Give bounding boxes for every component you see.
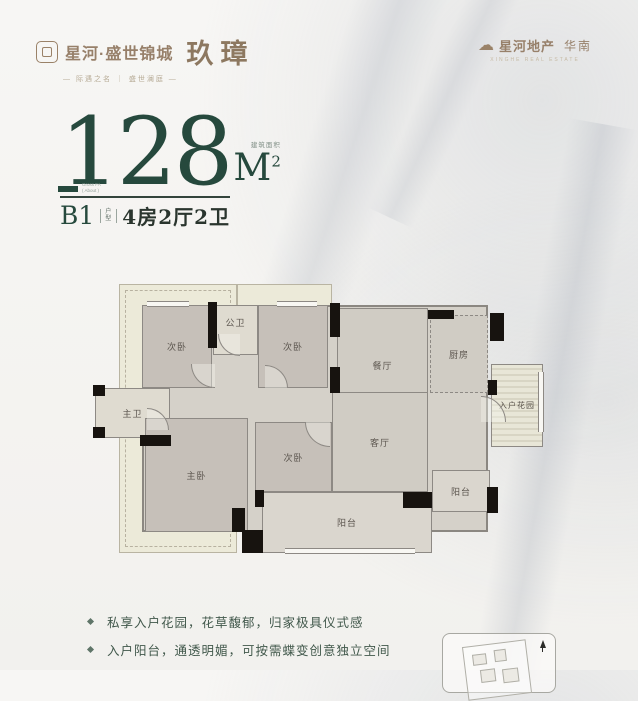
wall-segment — [403, 492, 432, 508]
wall-segment — [93, 385, 105, 396]
unit-code-label: 户型 — [100, 209, 117, 222]
area-note-bar — [58, 186, 78, 192]
unit-code: B1 — [60, 201, 94, 230]
marble-vein — [367, 0, 522, 228]
unit-layout: 4房2厅2卫 — [122, 201, 230, 230]
product-name: 玖璋 — [186, 32, 254, 71]
brand-tagline: — 际遇之名 ｜ 盛世澜庭 — — [63, 74, 254, 84]
north-arrow-icon — [540, 640, 546, 648]
room-living: 客厅 — [332, 392, 428, 492]
building-footprint — [494, 649, 507, 662]
diamond-bullet-icon — [87, 646, 94, 653]
note-item: 入户阳台，通透明媚，可按需蝶变创意独立空间 — [88, 640, 391, 659]
wall-segment — [330, 367, 340, 393]
headline-block: 128 建筑面积 M2 Gross FA ( About ) B1 户型 4房2… — [60, 110, 250, 230]
wall-segment — [140, 435, 171, 446]
wall-segment — [208, 302, 217, 348]
brand-block-left: 星河·盛世锦城 玖璋 — 际遇之名 ｜ 盛世澜庭 — — [36, 32, 254, 84]
wall-segment — [487, 487, 498, 513]
developer-region: 华南 — [564, 37, 592, 54]
note-text: 入户阳台，通透明媚，可按需蝶变创意独立空间 — [107, 640, 391, 659]
north-arrow-icon — [542, 648, 543, 652]
building-footprint — [472, 653, 487, 666]
room-kitchen: 厨房 — [430, 315, 488, 393]
wall-segment — [232, 508, 245, 532]
room-balcony-side: 阳台 — [432, 470, 490, 512]
developer-name: 星河地产 — [499, 36, 555, 55]
wall-segment — [330, 303, 340, 337]
site-minimap — [442, 633, 556, 693]
window — [285, 548, 415, 554]
wall-segment — [93, 427, 105, 438]
area-note: Gross FA ( About ) — [82, 182, 101, 194]
wall-segment — [255, 490, 264, 507]
window — [538, 372, 544, 432]
wall-segment — [428, 310, 454, 319]
site-parcel-outline — [462, 639, 532, 700]
developer-subtext: XINGHE REAL ESTATE — [478, 57, 592, 63]
wall-segment — [242, 530, 263, 553]
area-unit: M2 — [233, 146, 280, 189]
brand-name: 星河·盛世锦城 — [65, 40, 173, 64]
cloud-logo-icon: ☁ — [478, 38, 494, 54]
building-footprint — [480, 668, 496, 683]
wall-segment — [490, 313, 504, 341]
note-text: 私享入户花园，花草馥郁，归家极具仪式感 — [107, 612, 364, 631]
diamond-bullet-icon — [87, 618, 94, 625]
note-item: 私享入户花园，花草馥郁，归家极具仪式感 — [88, 612, 364, 631]
floorplan: 次卧 公卫 次卧 餐厅 厨房 入户花园 主卫 主卧 次卧 客厅 阳台 阳台 — [85, 272, 555, 572]
brand-block-right: ☁ 星河地产 华南 XINGHE REAL ESTATE — [478, 36, 592, 63]
window — [147, 301, 189, 307]
window — [277, 301, 317, 307]
brand-seal-icon — [36, 41, 58, 63]
wall-segment — [488, 380, 497, 395]
